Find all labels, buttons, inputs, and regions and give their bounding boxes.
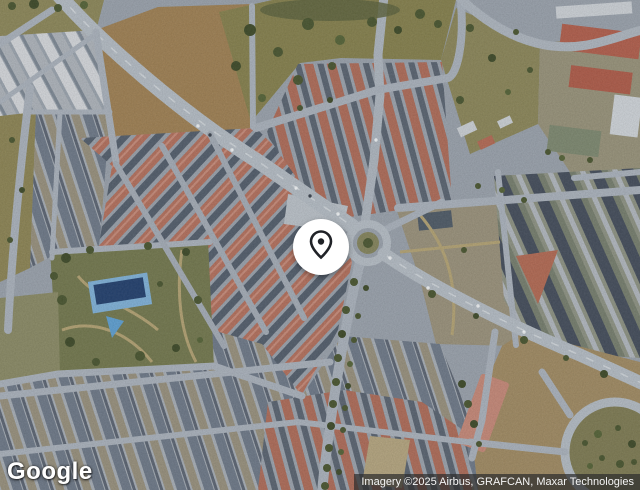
imagery-attribution: Imagery ©2025 Airbus, GRAFCAN, Maxar Tec… [354, 474, 640, 490]
map-viewport[interactable]: Google Imagery ©2025 Airbus, GRAFCAN, Ma… [0, 0, 640, 490]
google-logo[interactable]: Google [7, 458, 93, 486]
location-pin-marker[interactable] [289, 215, 353, 279]
location-pin-icon [289, 215, 353, 279]
